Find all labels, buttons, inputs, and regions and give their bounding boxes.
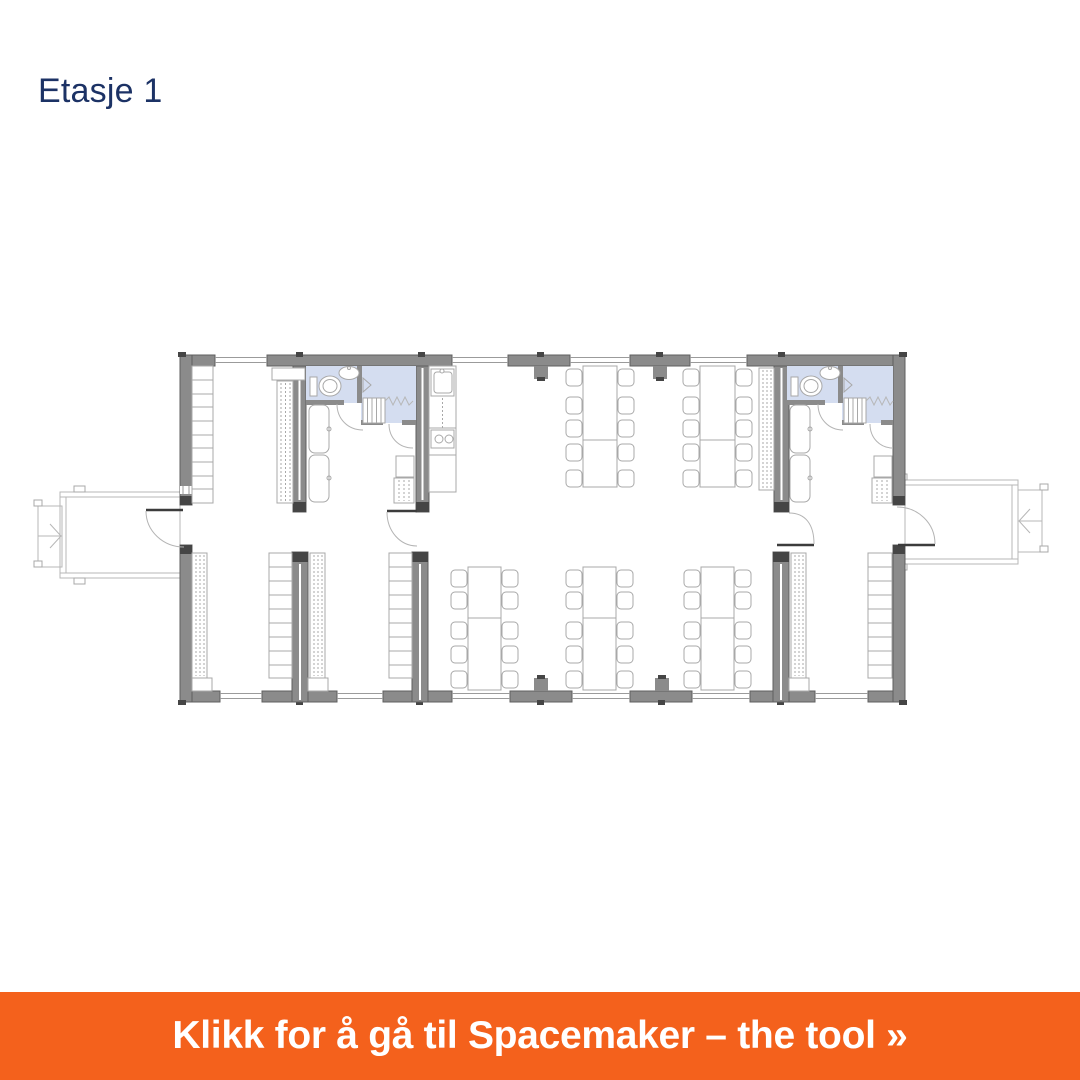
dining-area-upper xyxy=(566,366,752,487)
doors xyxy=(146,404,935,547)
toilet-icon xyxy=(310,377,317,396)
table xyxy=(701,567,734,618)
table xyxy=(468,618,501,690)
table xyxy=(583,567,616,618)
table xyxy=(701,618,734,690)
dining-area-lower xyxy=(451,567,751,690)
side-table xyxy=(396,456,414,477)
page: Etasje 1 xyxy=(0,0,1080,1080)
table xyxy=(583,618,616,690)
kitchen xyxy=(429,366,456,492)
floor-plan xyxy=(0,0,1080,1080)
spacemaker-banner-label: Klikk for å gå til Spacemaker – the tool… xyxy=(172,1014,907,1058)
table xyxy=(700,366,735,440)
side-table xyxy=(874,456,892,477)
toilet-icon xyxy=(791,377,798,396)
spacemaker-banner-link[interactable]: Klikk for å gå til Spacemaker – the tool… xyxy=(0,992,1080,1080)
stairs-icon xyxy=(844,398,866,423)
table xyxy=(583,366,617,440)
porch-left xyxy=(34,486,180,584)
stairs-icon xyxy=(363,398,385,423)
table xyxy=(583,440,617,487)
table xyxy=(468,567,501,618)
porch-right xyxy=(896,474,1048,570)
table xyxy=(700,440,735,487)
